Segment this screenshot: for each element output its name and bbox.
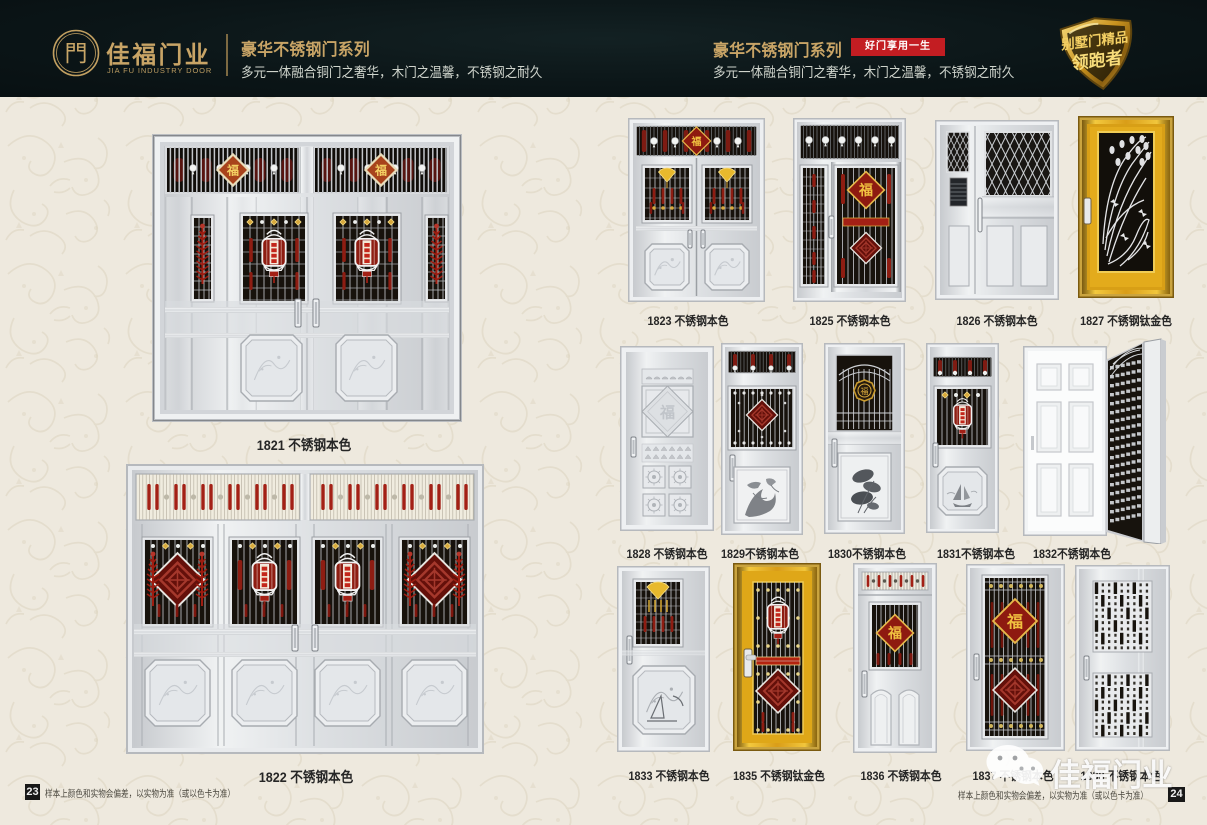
svg-text:福: 福	[858, 182, 873, 198]
svg-text:福: 福	[659, 404, 675, 422]
svg-text:福: 福	[374, 163, 387, 178]
svg-text:福: 福	[1006, 612, 1023, 631]
svg-text:福: 福	[691, 135, 702, 148]
svg-text:福: 福	[861, 387, 869, 396]
svg-text:門: 門	[65, 41, 88, 66]
svg-text:福: 福	[887, 625, 902, 641]
svg-text:福: 福	[226, 163, 239, 178]
